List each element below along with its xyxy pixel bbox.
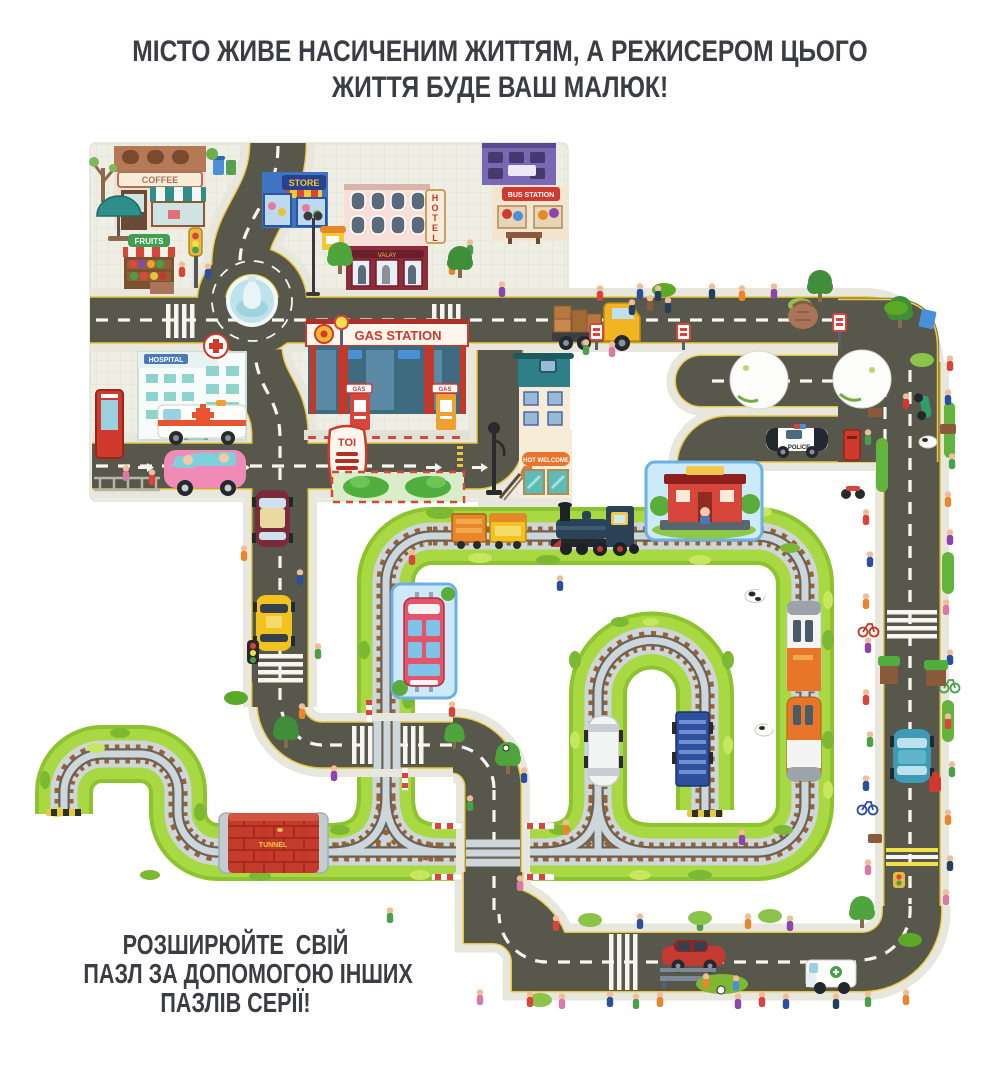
svg-text:O: O: [431, 203, 438, 213]
svg-text:TOI: TOI: [338, 437, 356, 449]
svg-text:GAS STATION: GAS STATION: [355, 328, 442, 343]
svg-text:COFFEE: COFFEE: [142, 175, 179, 185]
svg-text:GAS: GAS: [438, 387, 451, 393]
svg-text:HOSPITAL: HOSPITAL: [149, 357, 185, 364]
svg-text:GAS: GAS: [352, 387, 365, 393]
svg-text:BUS STATION: BUS STATION: [508, 192, 554, 199]
svg-text:VALAY: VALAY: [378, 253, 396, 259]
svg-text:E: E: [432, 223, 438, 233]
svg-text:HOT WELCOME: HOT WELCOME: [523, 458, 569, 464]
svg-text:FRUITS: FRUITS: [135, 237, 165, 246]
svg-text:L: L: [432, 233, 438, 243]
svg-text:STORE: STORE: [289, 178, 320, 188]
svg-text:T: T: [432, 213, 438, 223]
svg-text:TUNNEL: TUNNEL: [259, 842, 288, 849]
svg-text:H: H: [432, 193, 439, 203]
